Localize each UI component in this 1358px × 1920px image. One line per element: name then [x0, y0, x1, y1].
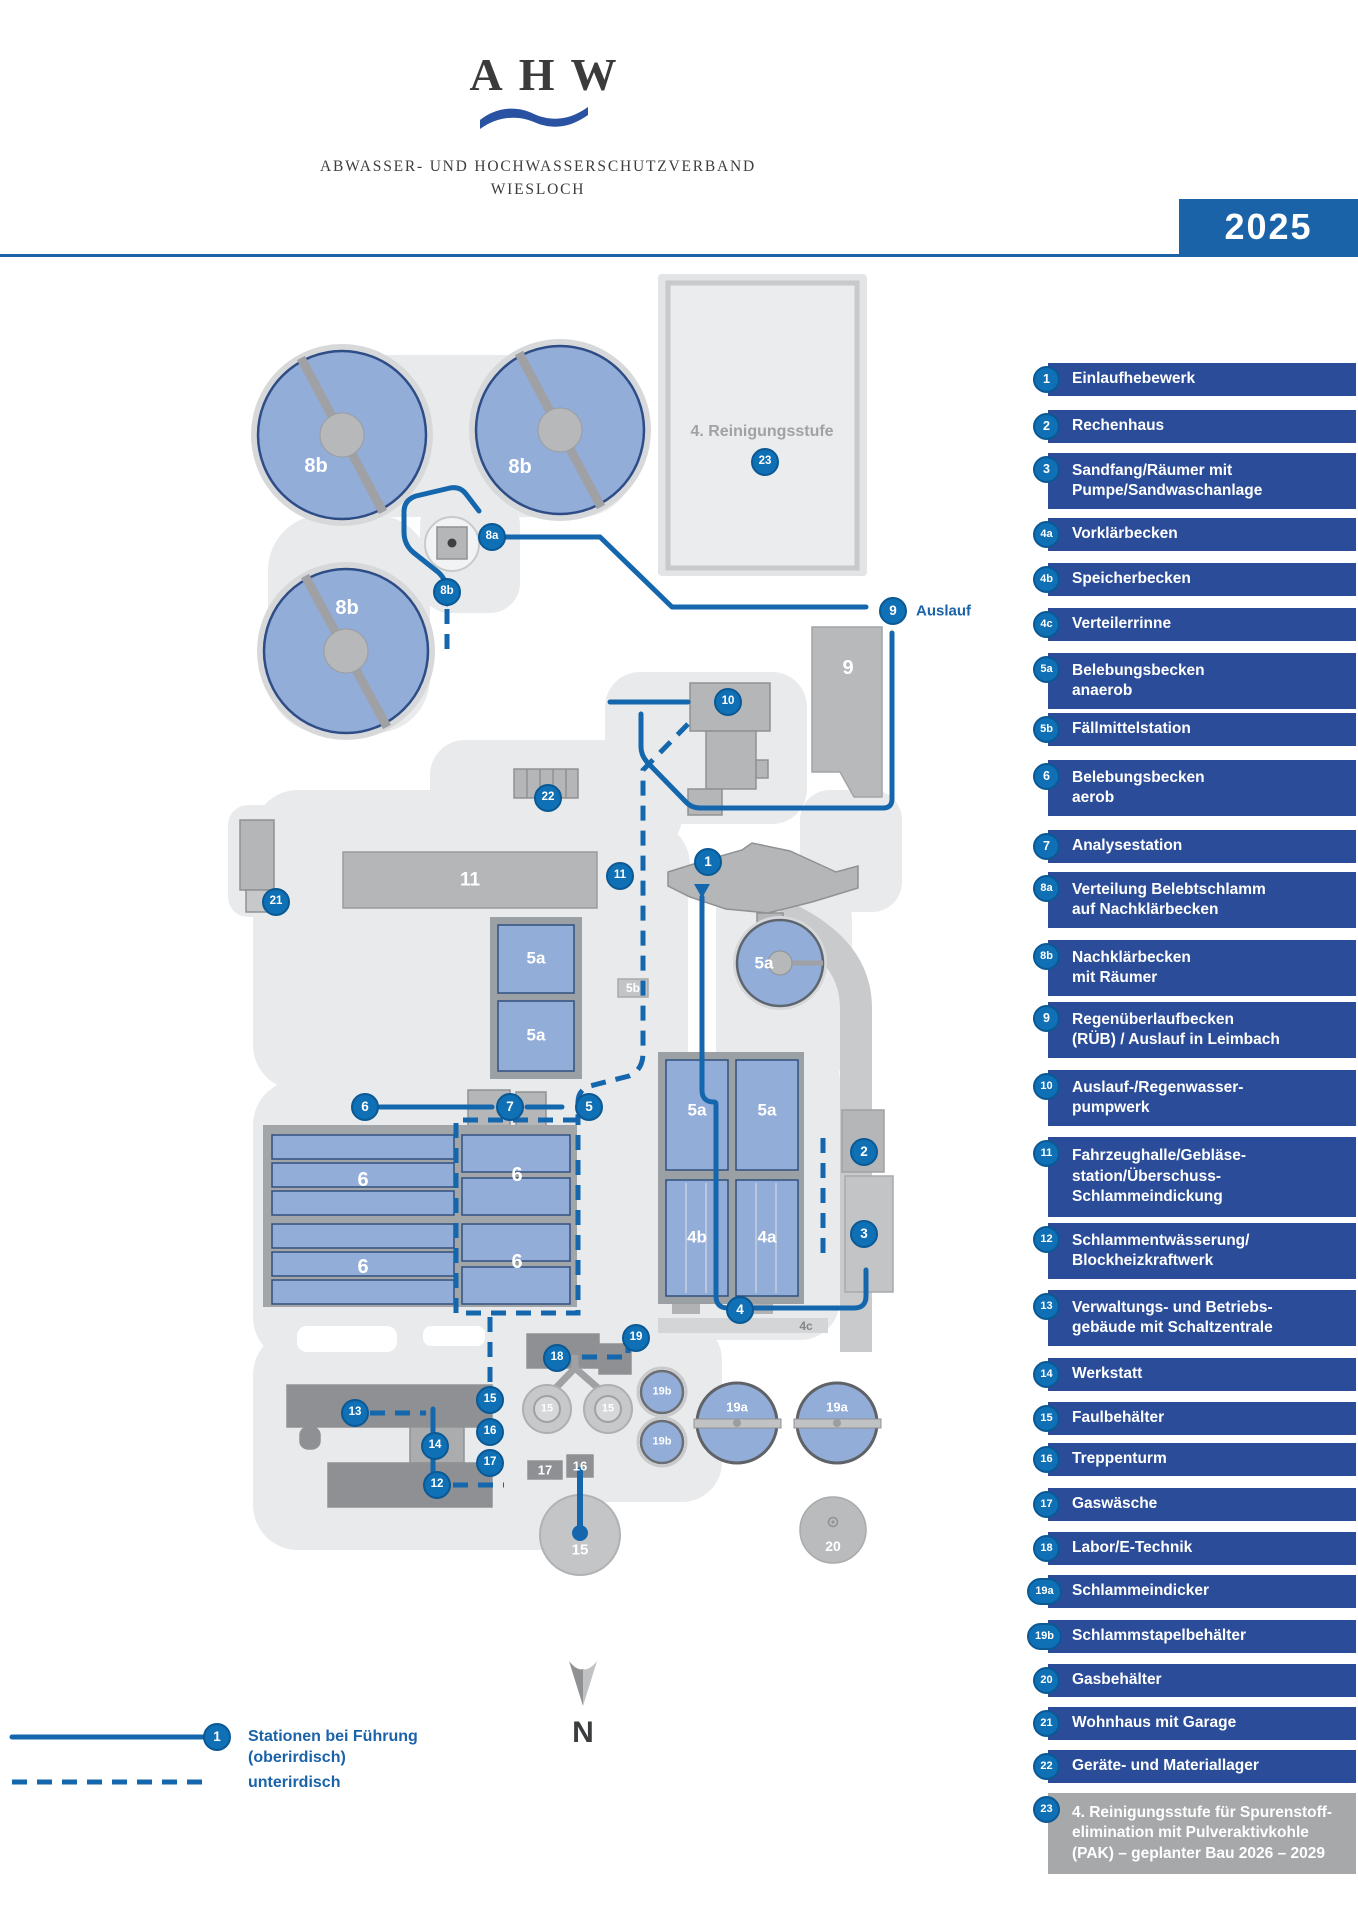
legend-num-18: 18 [1033, 1535, 1060, 1562]
legend-num-4b: 4b [1033, 566, 1060, 593]
legend-num-23: 23 [1033, 1796, 1060, 1823]
channel-label: 4c [799, 1320, 812, 1332]
legend-num-19b: 19b [1027, 1623, 1062, 1650]
legend-num-4c: 4c [1033, 611, 1060, 638]
legend-num-3: 3 [1033, 456, 1060, 483]
legend-num-21: 21 [1033, 1710, 1060, 1737]
station-marker-1: 1 [694, 848, 722, 876]
legend-num-8a: 8a [1033, 875, 1060, 902]
legend-item-11: 11Fahrzeughalle/Gebläse- station/Übersch… [1048, 1137, 1356, 1217]
basin-label: 8b [335, 598, 358, 618]
legend-num-20: 20 [1033, 1667, 1060, 1694]
north-label: N [572, 1716, 594, 1750]
legend-item-15: 15Faulbehälter [1048, 1402, 1356, 1435]
basin-label: 4a [758, 1229, 777, 1246]
legend-item-7: 7Analysestation [1048, 830, 1356, 863]
building-label: 9 [842, 658, 853, 678]
basin-label: 5a [527, 950, 546, 967]
station-marker-17: 17 [476, 1449, 504, 1477]
basin-label: 6 [511, 1252, 522, 1272]
chip-label: 17 [538, 1464, 552, 1477]
basin-label: 4b [687, 1229, 707, 1246]
station-marker-22: 22 [534, 784, 562, 812]
station-marker-4: 4 [726, 1296, 754, 1324]
legend-item-19b: 19bSchlammstapelbehälter [1048, 1620, 1356, 1653]
flow-legend-surface-label2: (oberirdisch) [248, 1748, 346, 1768]
basin-label: 5a [527, 1027, 546, 1044]
station-marker-8b: 8b [433, 578, 461, 606]
legend-num-2: 2 [1033, 413, 1060, 440]
flow-legend-underground-label: unterirdisch [248, 1773, 340, 1793]
legend-num-5b: 5b [1033, 716, 1060, 743]
basin-label: 5a [755, 955, 774, 972]
aeration-basins-6 [263, 1125, 577, 1307]
legend-item-4a: 4aVorklärbecken [1048, 518, 1356, 551]
legend-num-10: 10 [1033, 1073, 1060, 1100]
legend-item-4c: 4cVerteilerrinne [1048, 608, 1356, 641]
tank-label: 20 [825, 1539, 841, 1553]
legend-num-8b: 8b [1033, 943, 1060, 970]
distribution-station-8a [425, 517, 479, 571]
station-marker-6: 6 [351, 1093, 379, 1121]
legend-num-13: 13 [1033, 1293, 1060, 1320]
legend-item-22: 22Geräte- und Materiallager [1048, 1750, 1356, 1783]
legend-item-23: 234. Reinigungsstufe für Spurenstoff- el… [1048, 1793, 1356, 1874]
flow-legend-surface-label: Stationen bei Führung [248, 1727, 418, 1747]
legend-num-5a: 5a [1033, 656, 1060, 683]
tank-label: 15 [541, 1404, 553, 1415]
legend-item-5a: 5aBelebungsbecken anaerob [1048, 653, 1356, 709]
station-marker-18: 18 [543, 1344, 571, 1372]
legend-num-12: 12 [1033, 1226, 1060, 1253]
legend-item-20: 20Gasbehälter [1048, 1664, 1356, 1697]
tank-label: 19a [826, 1401, 848, 1414]
legend-num-11: 11 [1033, 1140, 1060, 1167]
pipe-endpoint-dot [572, 1525, 588, 1541]
basin-label: 8b [508, 457, 531, 477]
station-marker-23: 23 [751, 448, 779, 476]
legend-item-6: 6Belebungsbecken aerob [1048, 760, 1356, 816]
anaerobic-basins-5a [490, 917, 582, 1079]
tank-label: 15 [602, 1404, 614, 1415]
basin-label: 5a [758, 1102, 777, 1119]
legend-num-16: 16 [1033, 1446, 1060, 1473]
legend-item-1: 1Einlaufhebewerk [1048, 363, 1356, 396]
building-label: 11 [460, 871, 480, 890]
basin-label: 8b [304, 456, 327, 476]
station-marker-21: 21 [262, 888, 290, 916]
legend-item-2: 2Rechenhaus [1048, 410, 1356, 443]
legend-item-12: 12Schlammentwässerung/ Blockheizkraftwer… [1048, 1223, 1356, 1279]
legend-item-9: 9Regenüberlaufbecken (RÜB) / Auslauf in … [1048, 1002, 1356, 1058]
legend-num-19a: 19a [1027, 1578, 1062, 1605]
basin-label: 6 [357, 1257, 368, 1277]
planned-stage-label: 4. Reinigungsstufe [690, 424, 833, 440]
legend-item-8b: 8bNachklärbecken mit Räumer [1048, 940, 1356, 996]
station-marker-12: 12 [423, 1471, 451, 1499]
legend-num-15: 15 [1033, 1405, 1060, 1432]
station-marker-19: 19 [622, 1324, 650, 1352]
station-marker-15: 15 [476, 1386, 504, 1414]
tank-label: 19b [653, 1387, 672, 1398]
station-marker-8a: 8a [478, 523, 506, 551]
chip-label: 16 [573, 1460, 587, 1473]
primary-storage-basins [658, 1052, 828, 1333]
anaerobic-tank-5a-round [733, 916, 827, 1010]
legend-num-4a: 4a [1033, 521, 1060, 548]
legend-item-18: 18Labor/E-Technik [1048, 1532, 1356, 1565]
legend-item-19a: 19aSchlammeindicker [1048, 1575, 1356, 1608]
basin-label: 6 [357, 1170, 368, 1190]
basin-label: 6 [511, 1165, 522, 1185]
basin-label: 5a [688, 1102, 707, 1119]
station-marker-9: 9 [879, 597, 907, 625]
tank-label: 19a [726, 1401, 748, 1414]
legend-item-14: 14Werkstatt [1048, 1358, 1356, 1391]
station-marker-13: 13 [341, 1399, 369, 1427]
legend-item-5b: 5bFällmittelstation [1048, 713, 1356, 746]
legend-num-6: 6 [1033, 763, 1060, 790]
station-marker-5: 5 [575, 1093, 603, 1121]
chip-label: 5b [626, 982, 640, 994]
legend-item-16: 16Treppenturm [1048, 1443, 1356, 1476]
legend-item-10: 10Auslauf-/Regenwasser- pumpwerk [1048, 1070, 1356, 1126]
station-marker-3: 3 [850, 1220, 878, 1248]
legend-item-4b: 4bSpeicherbecken [1048, 563, 1356, 596]
legend-item-21: 21Wohnhaus mit Garage [1048, 1707, 1356, 1740]
site-plan-page: AHW ABWASSER- UND HOCHWASSERSCHUTZVERBAN… [0, 0, 1358, 1920]
flow-legend-sample-marker: 1 [203, 1723, 231, 1751]
legend-num-7: 7 [1033, 833, 1060, 860]
tank-label: 19b [653, 1437, 672, 1448]
station-marker-11: 11 [606, 862, 634, 890]
legend-num-1: 1 [1033, 366, 1060, 393]
station-marker-7: 7 [496, 1093, 524, 1121]
station-marker-14: 14 [421, 1432, 449, 1460]
legend-item-17: 17Gaswäsche [1048, 1488, 1356, 1521]
legend-item-13: 13Verwaltungs- und Betriebs- gebäude mit… [1048, 1290, 1356, 1346]
station-marker-16: 16 [476, 1418, 504, 1446]
legend-num-22: 22 [1033, 1753, 1060, 1780]
station-marker-2: 2 [850, 1138, 878, 1166]
legend-item-3: 3Sandfang/Räumer mit Pumpe/Sandwaschanla… [1048, 453, 1356, 509]
legend-num-17: 17 [1033, 1491, 1060, 1518]
station-marker-10: 10 [714, 688, 742, 716]
outfall-label: Auslauf [916, 604, 971, 619]
legend-num-14: 14 [1033, 1361, 1060, 1388]
north-arrow-icon [569, 1661, 597, 1706]
tank-label: 15 [572, 1543, 589, 1558]
legend-item-8a: 8aVerteilung Belebtschlamm auf Nachklärb… [1048, 872, 1356, 928]
legend-num-9: 9 [1033, 1005, 1060, 1032]
